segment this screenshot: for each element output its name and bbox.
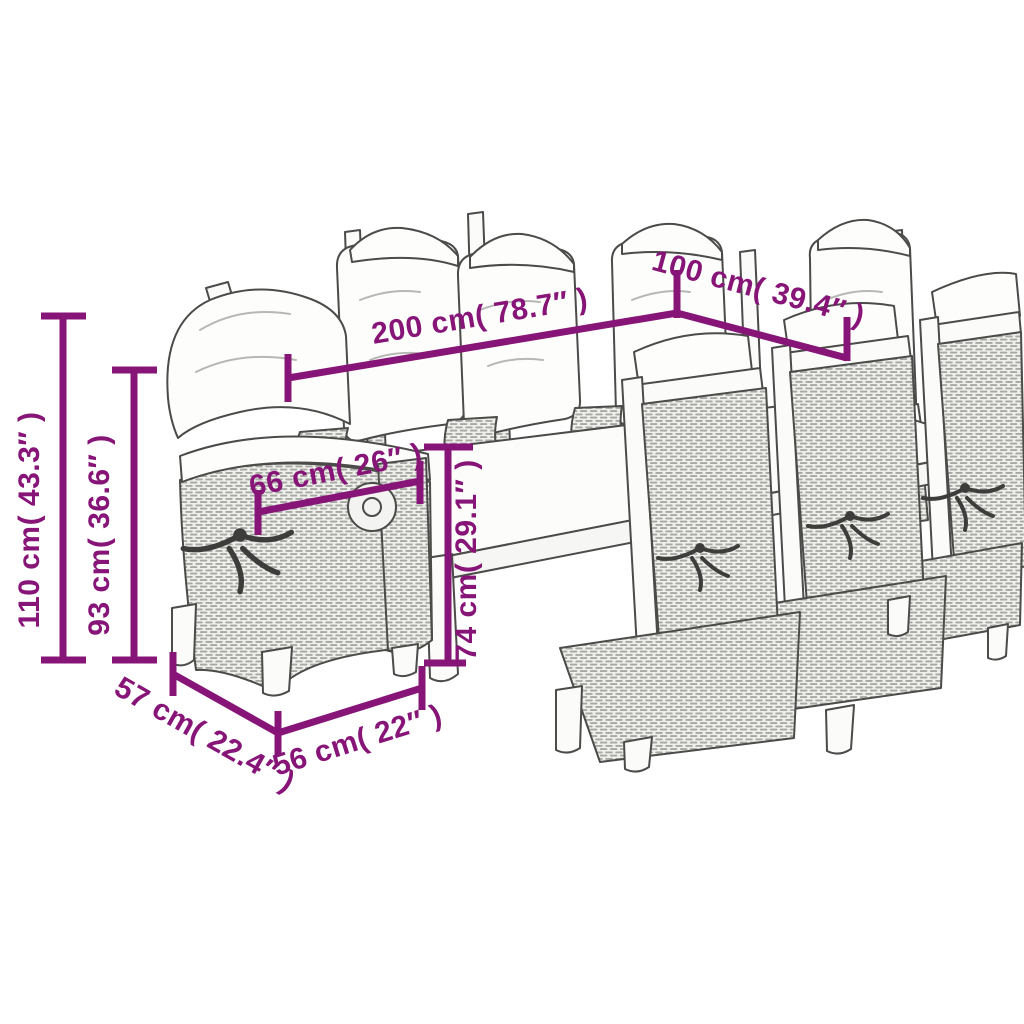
chair-leg — [262, 647, 292, 696]
chair-front-right-1 — [556, 333, 800, 771]
chair-leg — [888, 596, 910, 636]
chair-leg — [392, 644, 418, 676]
dim-label-back-height: 93 cm( 36.6″ ) — [83, 434, 116, 635]
seat — [560, 612, 800, 762]
back-panel — [790, 356, 924, 618]
back-panel — [642, 388, 778, 652]
dining-set-illustration: 110 cm( 43.3″ ) 93 cm( 36.6″ ) 200 cm( 7… — [0, 0, 1024, 1024]
dimension-diagram: 110 cm( 43.3″ ) 93 cm( 36.6″ ) 200 cm( 7… — [0, 0, 1024, 1024]
chair-leg — [556, 686, 582, 753]
chair-leg — [624, 737, 652, 772]
dim-label-table-height: 74 cm( 29.1″ ) — [450, 459, 483, 660]
chair-leg — [826, 705, 854, 754]
dimension-back-height: 93 cm( 36.6″ ) — [83, 370, 157, 660]
chair-leg — [988, 624, 1008, 660]
dimension-chair-width: 56 cm( 22″ ) — [269, 666, 446, 783]
dimension-total-height: 110 cm( 43.3″ ) — [13, 316, 86, 660]
dim-label-total-height: 110 cm( 43.3″ ) — [13, 411, 46, 628]
